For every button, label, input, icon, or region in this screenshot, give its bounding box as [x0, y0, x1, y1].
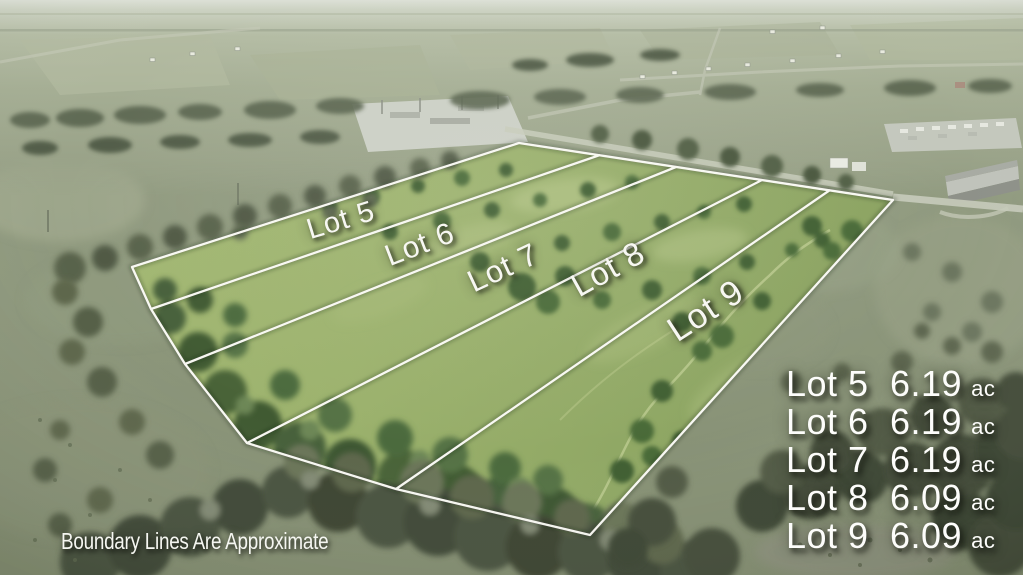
legend-acreage: 6.19	[890, 363, 962, 405]
legend-acreage: 6.19	[890, 439, 962, 481]
legend-lot-name: Lot 7	[786, 439, 882, 481]
legend-unit: ac	[971, 414, 995, 440]
legend-lot-name: Lot 8	[786, 477, 882, 519]
aerial-lot-map: Lot 5 Lot 6 Lot 7 Lot 8 Lot 9 Lot 5 6.19…	[0, 0, 1023, 575]
legend-row-lot9: Lot 9 6.09 ac	[786, 515, 995, 553]
legend-acreage: 6.09	[890, 515, 962, 557]
legend-acreage: 6.09	[890, 477, 962, 519]
legend-row-lot7: Lot 7 6.19 ac	[786, 439, 995, 477]
acreage-legend: Lot 5 6.19 ac Lot 6 6.19 ac Lot 7 6.19 a…	[786, 363, 995, 553]
legend-lot-name: Lot 5	[786, 363, 882, 405]
legend-unit: ac	[971, 528, 995, 554]
boundary-disclaimer: Boundary Lines Are Approximate	[61, 528, 328, 555]
legend-row-lot6: Lot 6 6.19 ac	[786, 401, 995, 439]
legend-acreage: 6.19	[890, 401, 962, 443]
legend-lot-name: Lot 6	[786, 401, 882, 443]
legend-row-lot8: Lot 8 6.09 ac	[786, 477, 995, 515]
legend-unit: ac	[971, 452, 995, 478]
legend-unit: ac	[971, 376, 995, 402]
legend-row-lot5: Lot 5 6.19 ac	[786, 363, 995, 401]
legend-unit: ac	[971, 490, 995, 516]
legend-lot-name: Lot 9	[786, 515, 882, 557]
